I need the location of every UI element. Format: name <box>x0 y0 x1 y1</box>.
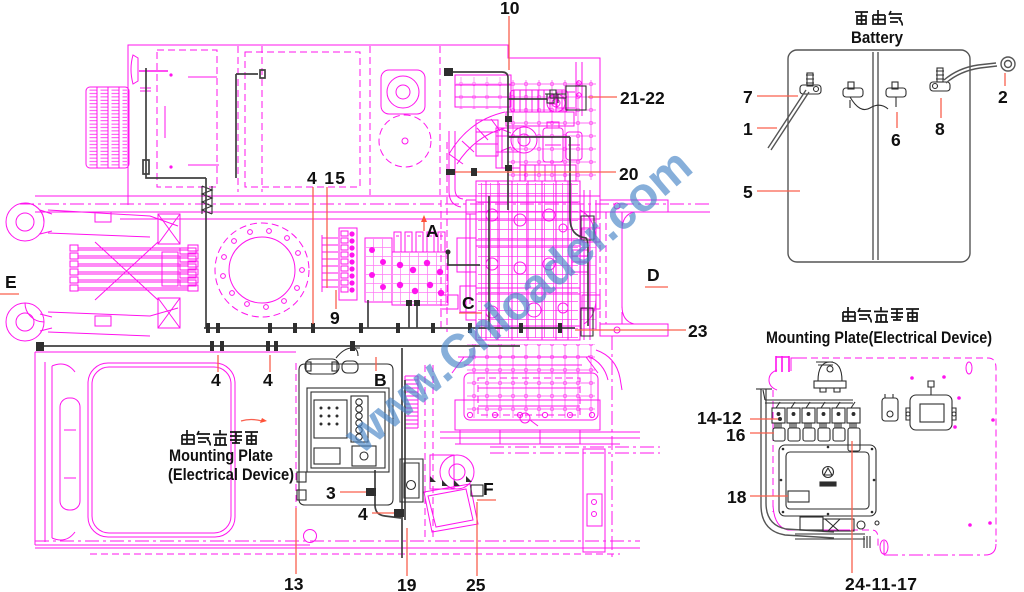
svg-text:4: 4 <box>211 370 221 390</box>
svg-text:4: 4 <box>263 370 273 390</box>
svg-text:18: 18 <box>727 487 747 507</box>
svg-text:13: 13 <box>284 574 304 592</box>
svg-text:4 15: 4 15 <box>307 168 345 188</box>
svg-text:C: C <box>462 293 475 313</box>
svg-text:Mounting Plate(Electrical Devi: Mounting Plate(Electrical Device) <box>766 328 992 347</box>
svg-text:(Electrical Device): (Electrical Device) <box>168 465 294 484</box>
svg-text:8: 8 <box>935 119 945 139</box>
svg-text:E: E <box>5 272 17 292</box>
svg-text:16: 16 <box>726 425 746 445</box>
svg-text:D: D <box>647 265 660 285</box>
svg-text:2: 2 <box>998 87 1008 107</box>
svg-text:B: B <box>374 370 387 390</box>
svg-text:1: 1 <box>743 119 753 139</box>
svg-text:19: 19 <box>397 575 417 592</box>
svg-text:24-11-17: 24-11-17 <box>845 574 917 592</box>
svg-text:9: 9 <box>330 308 340 328</box>
svg-text:21-22: 21-22 <box>620 88 665 108</box>
svg-text:10: 10 <box>500 0 520 18</box>
svg-text:25: 25 <box>466 575 486 592</box>
svg-text:4: 4 <box>358 504 368 524</box>
svg-text:23: 23 <box>688 321 708 341</box>
svg-text:3: 3 <box>326 483 336 503</box>
svg-text:5: 5 <box>743 182 753 202</box>
svg-text:7: 7 <box>743 87 753 107</box>
svg-text:6: 6 <box>891 130 901 150</box>
svg-text:Mounting Plate: Mounting Plate <box>169 446 273 465</box>
svg-text:F: F <box>483 479 494 499</box>
svg-text:20: 20 <box>619 164 639 184</box>
svg-text:A: A <box>426 221 439 241</box>
svg-text:Battery: Battery <box>851 28 903 47</box>
